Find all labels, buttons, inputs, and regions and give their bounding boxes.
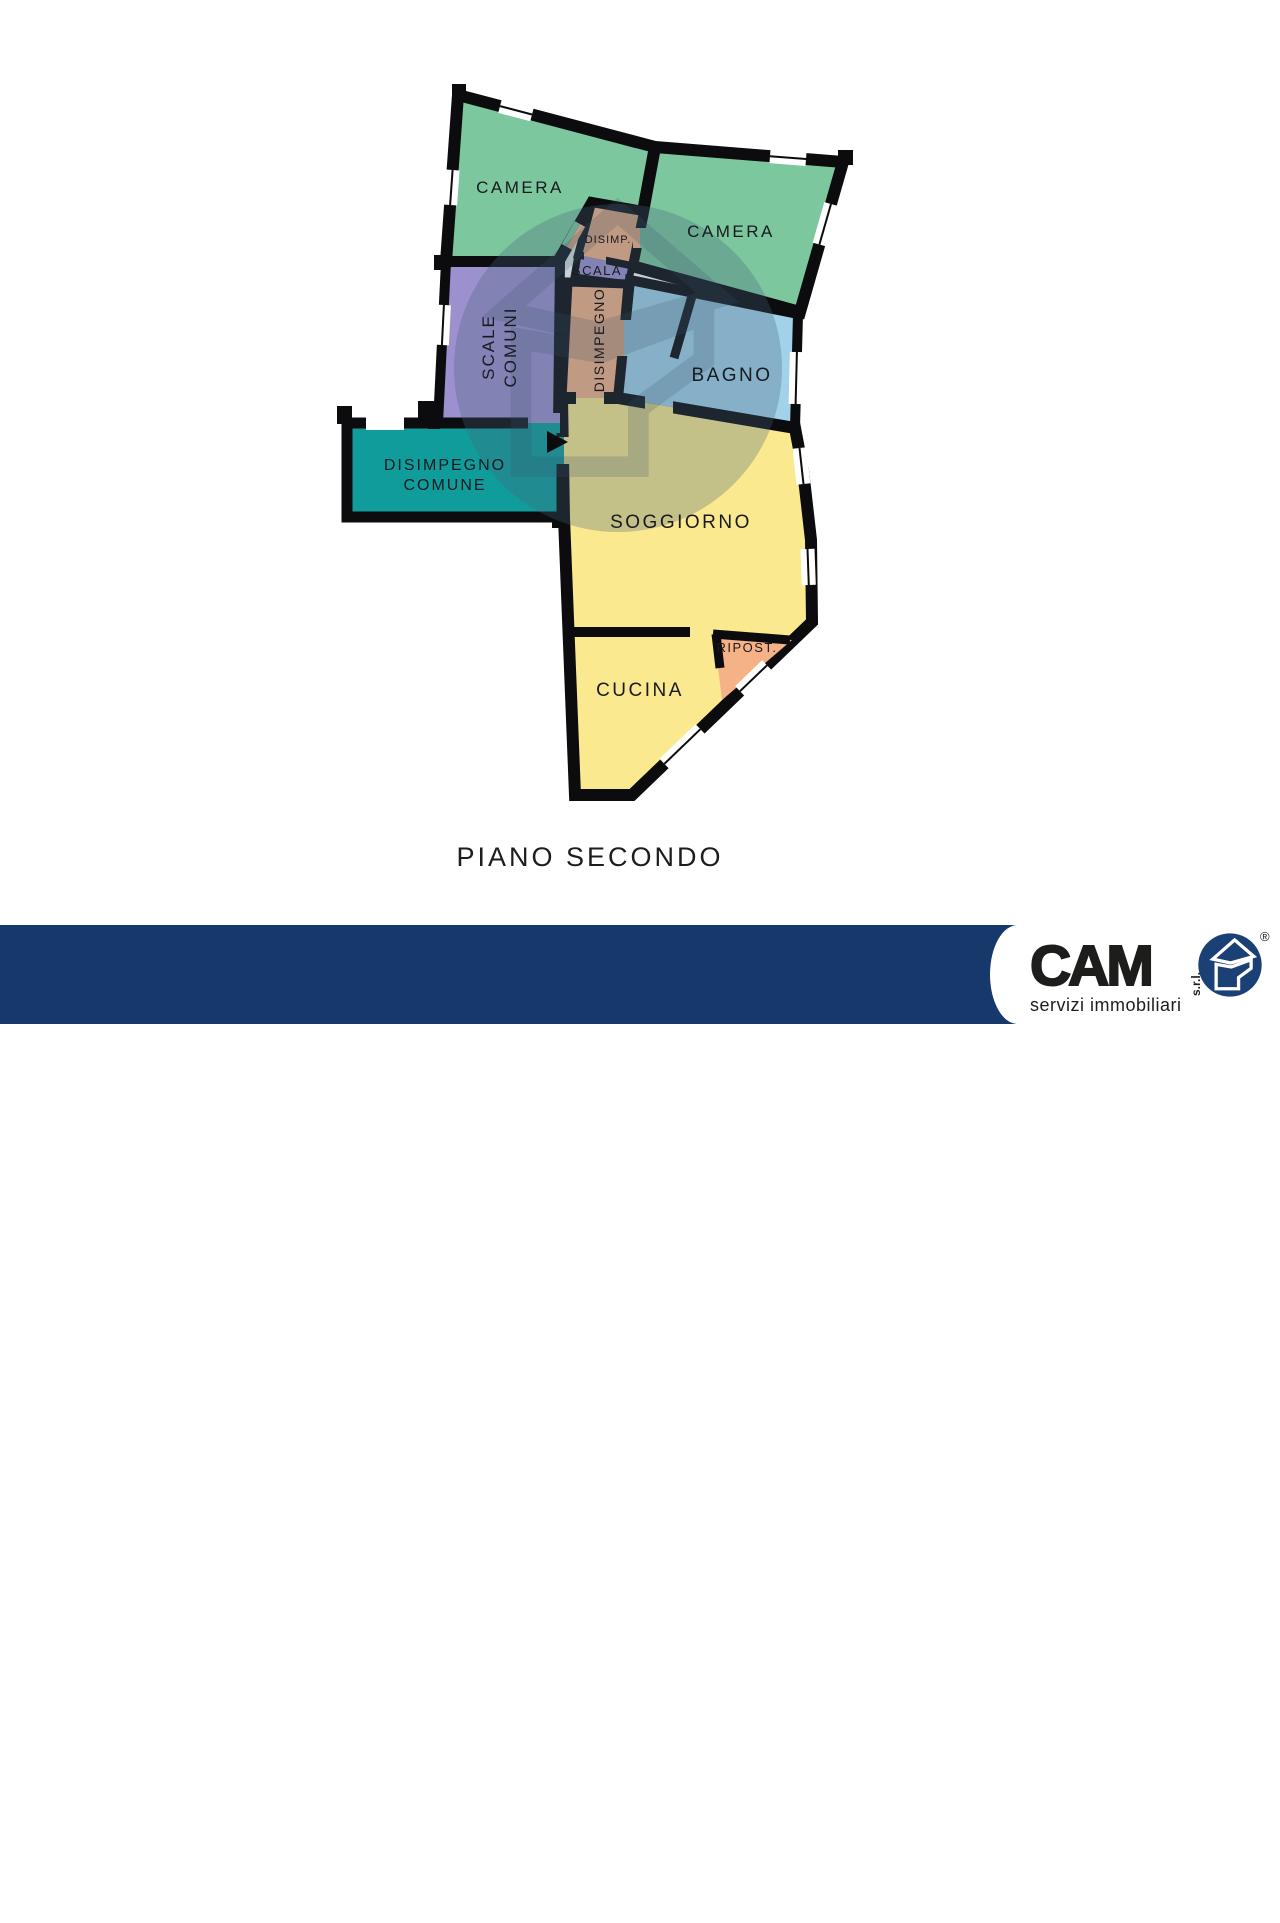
label-disimpegno-comune-2: COMUNE xyxy=(403,477,486,494)
label-scala: SCALA xyxy=(572,263,622,278)
floor-title: PIANO SECONDO xyxy=(456,842,723,872)
footer-bar: APPARTAMENTO BRENO CAM s.r.l. ® servizi … xyxy=(0,925,1280,1024)
floorplan-canvas: CAMERA CAMERA DISIMP. SCALA SCALE COMUNI… xyxy=(0,0,1280,1024)
label-camera-right: CAMERA xyxy=(687,222,775,241)
company-logo-tagline: servizi immobiliari xyxy=(1030,995,1182,1016)
label-disimpegno-comune-1: DISIMPEGNO xyxy=(384,457,506,474)
house-logo-icon xyxy=(1197,932,1263,998)
label-bagno: BAGNO xyxy=(691,365,772,386)
company-logo-name: CAM xyxy=(1030,933,1151,999)
label-disimpegno: DISIMPEGNO xyxy=(591,288,607,392)
registered-trademark-icon: ® xyxy=(1260,929,1270,944)
label-soggiorno: SOGGIORNO xyxy=(610,512,752,533)
label-disimp: DISIMP. xyxy=(585,234,632,246)
label-camera-left: CAMERA xyxy=(476,178,564,197)
label-ripostiglio: RIPOST. xyxy=(716,640,777,655)
label-scale-comuni-2: COMUNI xyxy=(501,307,520,388)
property-name-line1: APPARTAMENTO xyxy=(57,1867,209,1894)
label-scale-comuni-1: SCALE xyxy=(479,314,498,380)
label-cucina: CUCINA xyxy=(596,680,684,701)
company-logo-panel: CAM s.r.l. ® servizi immobiliari xyxy=(990,925,1280,1024)
property-name-line2: BRENO xyxy=(57,1896,123,1923)
